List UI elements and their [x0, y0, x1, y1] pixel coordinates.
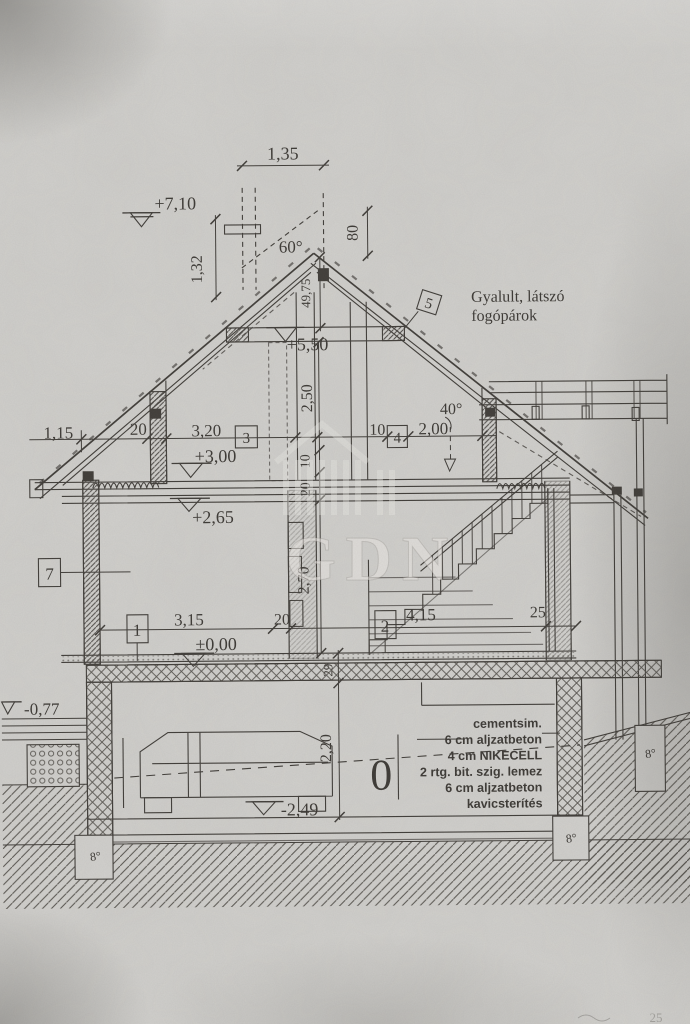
- scanned-section-drawing: -0,77: [0, 0, 690, 1024]
- scan-grain: [0, 0, 690, 1024]
- section-drawing-canvas: -0,77: [0, 0, 690, 1024]
